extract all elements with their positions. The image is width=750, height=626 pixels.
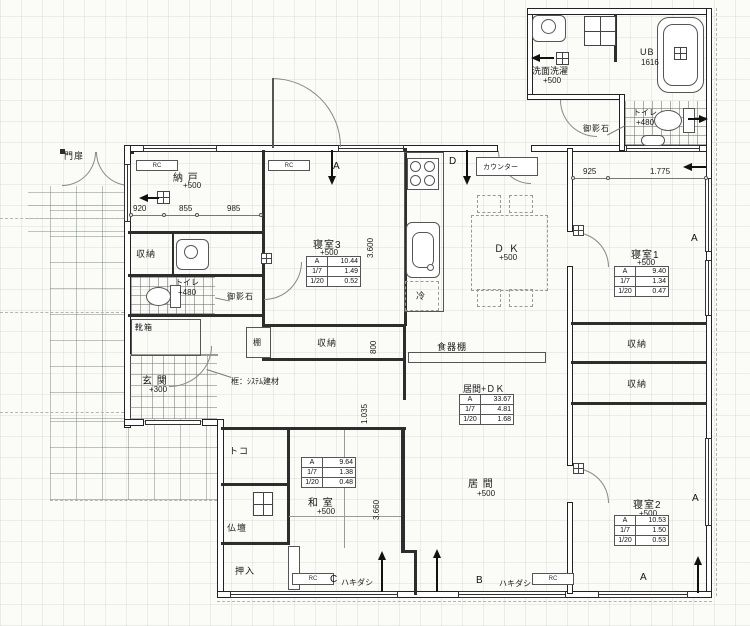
section-arrow-down <box>463 176 471 185</box>
room-level-toilet-left: +480 <box>178 288 196 297</box>
stove-burner <box>424 175 435 186</box>
dim-3660: 3.660 <box>372 500 381 520</box>
marker-a-right2: A <box>692 493 699 504</box>
ub-door-icon <box>674 47 687 60</box>
dining-chair <box>477 289 501 307</box>
room-level-dk: +500 <box>499 253 517 262</box>
section-arrow-stem <box>697 565 699 593</box>
site-line <box>0 412 124 413</box>
fridge-label: 冷 <box>416 289 425 302</box>
label-butsudan: 仏壇 <box>227 521 247 534</box>
senmen-section-arrow <box>531 54 540 62</box>
wall-bath-top <box>527 8 712 15</box>
label-shuno-long: 収納 <box>317 336 337 349</box>
dim-1775: 1.775 <box>650 167 670 176</box>
kitchen-faucet <box>427 264 434 271</box>
label-shuno-right1: 収納 <box>627 337 647 350</box>
marker-a-top: A <box>333 161 340 172</box>
approach-path <box>50 186 128 419</box>
bedroom1-door-arc <box>574 232 609 267</box>
toiletT-tank <box>683 108 695 133</box>
wall-butsudan-bottom <box>221 542 290 545</box>
site-line <box>0 312 124 313</box>
room-level-washitsu: +500 <box>317 507 335 516</box>
tatami-line-h <box>289 516 401 517</box>
room-size-ub: 1616 <box>641 58 659 67</box>
toiletT-sink <box>641 135 665 146</box>
toiletL-bowl <box>146 287 171 306</box>
wall-left-lower <box>217 419 224 598</box>
wall-toko-right <box>287 429 290 545</box>
section-arrow-stem <box>466 150 468 177</box>
window-bedroom3-top <box>338 145 404 152</box>
dim-tick <box>162 213 166 217</box>
sash-code-box: RC <box>268 160 310 171</box>
window-bedroom1-top <box>626 145 700 152</box>
genkan-entry-door <box>145 420 201 425</box>
outline-dash <box>716 8 717 596</box>
window-washitsu-hakidashi <box>230 591 398 598</box>
stove-burner <box>410 161 421 172</box>
area-table-bedroom1: A9.40 1/71.34 1/200.47 <box>614 266 669 297</box>
bedroom1-door-icon <box>573 225 584 236</box>
dining-chair <box>509 289 533 307</box>
room-level-genkan: +300 <box>149 385 167 394</box>
wall-nando-right <box>262 150 265 234</box>
dim-tick <box>571 176 575 180</box>
wall-closet-top <box>262 324 406 327</box>
gate-door-arc-left <box>62 152 96 186</box>
sash-code-box: RC <box>532 573 574 585</box>
wall-genkan-bottom <box>124 419 144 426</box>
label-hakidashi-b: ハキダシ <box>499 578 531 589</box>
marker-a-right1: A <box>691 233 698 244</box>
dim-line-bedroom1 <box>573 178 707 179</box>
section-arrow-up <box>433 549 441 558</box>
toiletT-bowl <box>654 110 682 131</box>
marker-b-bottom: B <box>476 575 483 586</box>
room-level-ima: +500 <box>477 489 495 498</box>
outline-dash <box>217 601 712 602</box>
room-level-nando: +500 <box>183 181 201 190</box>
bedroom2-door-icon <box>573 463 584 474</box>
shokkidana-counter <box>408 352 546 363</box>
dim-985: 985 <box>227 204 240 213</box>
label-toko: トコ <box>229 444 249 457</box>
window-bedroom2-right <box>705 438 712 526</box>
washbasin-left-bowl <box>184 245 198 259</box>
window-ima-hakidashi <box>458 591 566 598</box>
room-label-ima: 居 間 <box>468 475 494 490</box>
label-kamachi: 框：ｼｽﾃﾑ建材 <box>231 376 279 387</box>
section-arrow-stem <box>436 558 438 592</box>
dim-tick <box>129 213 133 217</box>
section-arrow-down <box>328 176 336 185</box>
section-arrow-up <box>378 551 386 560</box>
wall-washitsu-corner-v <box>414 550 417 595</box>
label-shuno-right2: 収納 <box>627 377 647 390</box>
site-line <box>50 500 217 501</box>
senmen-section-arrow-stem <box>540 57 554 59</box>
label-oshiire: 押入 <box>235 564 255 577</box>
room-level-senmen: +500 <box>543 76 561 85</box>
wall-closetR-top <box>571 322 707 325</box>
wall-center <box>567 266 573 466</box>
tatami-line-v <box>344 430 345 548</box>
window-bedroom1-right2 <box>705 260 712 316</box>
dim-925: 925 <box>583 167 596 176</box>
section-arrow-up <box>694 556 702 565</box>
nando-exterior-door-leaf <box>272 78 274 148</box>
wall-wash-partition <box>172 233 174 277</box>
nando-arrow-stem <box>147 197 159 199</box>
bedroom1-wall-arrow <box>683 163 692 171</box>
window-bedroom1-right <box>705 178 712 252</box>
senmen-basin-bowl <box>541 19 556 34</box>
room-label-ub: UB <box>640 47 655 57</box>
site-line <box>0 218 124 219</box>
stove-burner <box>424 161 435 172</box>
sash-code-box: RC <box>136 160 178 171</box>
counter-label: カウンター <box>483 162 518 172</box>
dim-tick <box>259 213 263 217</box>
dim-tick <box>704 176 708 180</box>
marker-c-bottom: C <box>330 574 337 585</box>
gate-post <box>60 149 65 154</box>
label-shuno-nando: 収納 <box>136 247 156 260</box>
wall-hall-east <box>403 324 406 400</box>
bedroom3-door-arc <box>264 262 302 300</box>
marker-a-bottom: A <box>640 572 647 583</box>
area-table-washitsu: A9.64 1/71.38 1/200.48 <box>301 457 356 488</box>
dim-tick <box>606 176 610 180</box>
area-table-bedroom2: A10.53 1/71.50 1/200.53 <box>614 515 669 546</box>
dim-3600: 3.600 <box>366 238 375 258</box>
window-bedroom2-bottom <box>598 591 688 598</box>
dim-855: 855 <box>179 204 192 213</box>
label-mikageishi-top: 御影石 <box>583 123 610 134</box>
toiletT-arrow <box>699 115 708 123</box>
dim-920: 920 <box>133 204 146 213</box>
dim-1035: 1.035 <box>360 404 369 424</box>
kitchen-sink-basin <box>412 232 434 268</box>
wall-washitsu-east <box>401 427 405 553</box>
room-label-toilet-left: トイレ <box>175 277 199 288</box>
wall-washitsu-top <box>221 427 406 430</box>
section-arrow-stem <box>381 560 383 592</box>
floor-plan: 門扉 <box>0 0 750 626</box>
marker-d-top: D <box>449 156 456 167</box>
wall-toko-bottom <box>221 483 290 486</box>
wall-nando-bottom <box>128 231 265 234</box>
wall-closetR-mid <box>571 361 707 364</box>
label-kutsubako: 靴箱 <box>135 322 153 333</box>
approach-path-lower <box>50 419 217 500</box>
room-label-toilet-top: トイレ <box>633 107 657 118</box>
window-nando-top <box>143 145 217 152</box>
sash-code-box: RC <box>292 573 334 585</box>
washing-machine <box>584 16 616 46</box>
dim-tick <box>195 213 199 217</box>
dining-chair <box>509 195 533 213</box>
label-shokkidana: 食器棚 <box>437 340 467 353</box>
dining-chair <box>477 195 501 213</box>
label-hakidashi-c: ハキダシ <box>341 577 373 588</box>
butsudan-icon <box>253 492 273 516</box>
area-table-ima-dk: A33.67 1/74.81 1/201.68 <box>459 394 514 425</box>
nando-exterior-door-arc <box>272 78 341 147</box>
wall-center <box>567 148 573 232</box>
wall-closetR-bottom <box>571 402 707 405</box>
room-level-toilet-top: +480 <box>636 118 654 127</box>
bedroom3-door-icon <box>261 253 272 264</box>
wall-toiletL-bottom <box>128 314 265 317</box>
wall-closet-bottom <box>262 358 406 361</box>
label-mikageishi-left: 御影石 <box>227 291 254 302</box>
stove-burner <box>410 175 421 186</box>
label-tana: 棚 <box>253 337 262 348</box>
area-table-bedroom3: A10.44 1/71.49 1/200.52 <box>306 256 361 287</box>
dim-800: 800 <box>369 341 378 354</box>
bedroom1-wall-arrow-stem <box>692 166 706 168</box>
